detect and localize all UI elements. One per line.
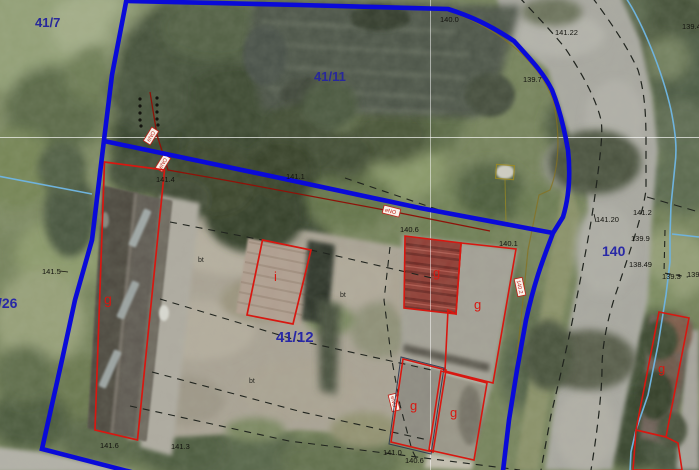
svg-text:139.3: 139.3 [662, 272, 681, 281]
svg-text:bt: bt [340, 292, 346, 299]
svg-text:139.: 139. [687, 270, 699, 279]
svg-text:/26: /26 [0, 295, 18, 311]
svg-text:g: g [474, 297, 481, 312]
svg-text:139.9: 139.9 [631, 234, 650, 243]
svg-text:g: g [450, 405, 457, 420]
svg-text:bt: bt [198, 257, 204, 264]
svg-text:bt: bt [249, 378, 255, 385]
svg-text:41/11: 41/11 [314, 69, 346, 84]
svg-text:138.49: 138.49 [629, 260, 652, 269]
svg-text:140: 140 [602, 243, 626, 259]
svg-text:141.1: 141.1 [286, 172, 305, 181]
svg-text:141.22: 141.22 [555, 28, 578, 37]
svg-text:141.20: 141.20 [596, 215, 619, 224]
svg-text:141.0: 141.0 [383, 448, 402, 457]
svg-text:g: g [410, 398, 417, 413]
svg-text:140.6: 140.6 [400, 225, 419, 234]
svg-text:i: i [274, 269, 277, 284]
svg-text:139.7: 139.7 [523, 75, 542, 84]
svg-text:140.6: 140.6 [405, 456, 424, 465]
svg-text:141.2: 141.2 [633, 208, 652, 217]
svg-text:141.4: 141.4 [156, 175, 175, 184]
svg-text:141.5: 141.5 [42, 267, 61, 276]
svg-text:139.4: 139.4 [682, 22, 699, 31]
svg-text:141.6: 141.6 [100, 441, 119, 450]
svg-text:140.1: 140.1 [499, 239, 518, 248]
svg-text:141.3: 141.3 [171, 442, 190, 451]
svg-text:41/7: 41/7 [35, 15, 60, 30]
svg-text:41/12: 41/12 [276, 329, 314, 346]
svg-text:140.0: 140.0 [440, 15, 459, 24]
svg-text:g: g [433, 265, 440, 280]
svg-text:g: g [104, 291, 112, 307]
svg-text:g: g [658, 361, 665, 376]
